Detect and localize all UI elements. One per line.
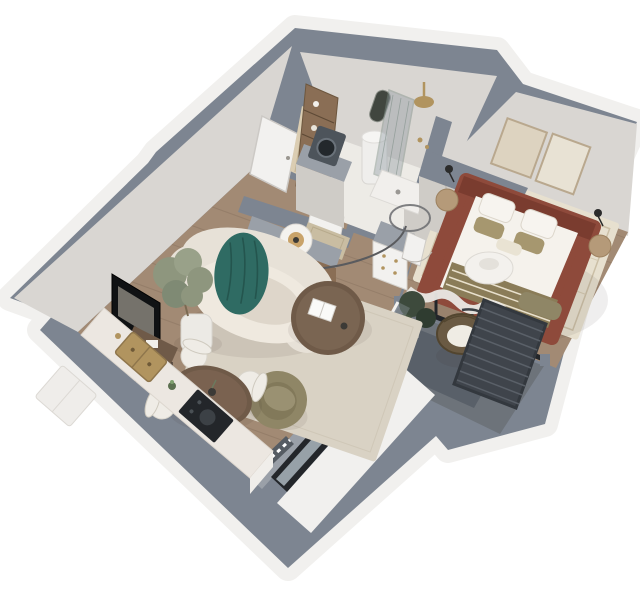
door-wall-post <box>540 354 550 366</box>
rain-shower-head <box>414 96 434 108</box>
shelf-item <box>313 101 319 107</box>
nightstand-left <box>436 189 458 211</box>
cup <box>341 323 348 330</box>
shower-mixer <box>418 138 423 143</box>
faucet <box>115 333 121 339</box>
floorplan-render <box>0 0 640 610</box>
shower-drain <box>396 190 401 195</box>
bottle-top <box>170 380 174 384</box>
door-handle <box>286 156 290 160</box>
hand-shower <box>425 145 429 149</box>
nightstand-right <box>589 235 611 257</box>
vase <box>208 388 216 396</box>
paper-pendant-lamp <box>465 252 513 284</box>
shelf-item <box>311 125 317 131</box>
